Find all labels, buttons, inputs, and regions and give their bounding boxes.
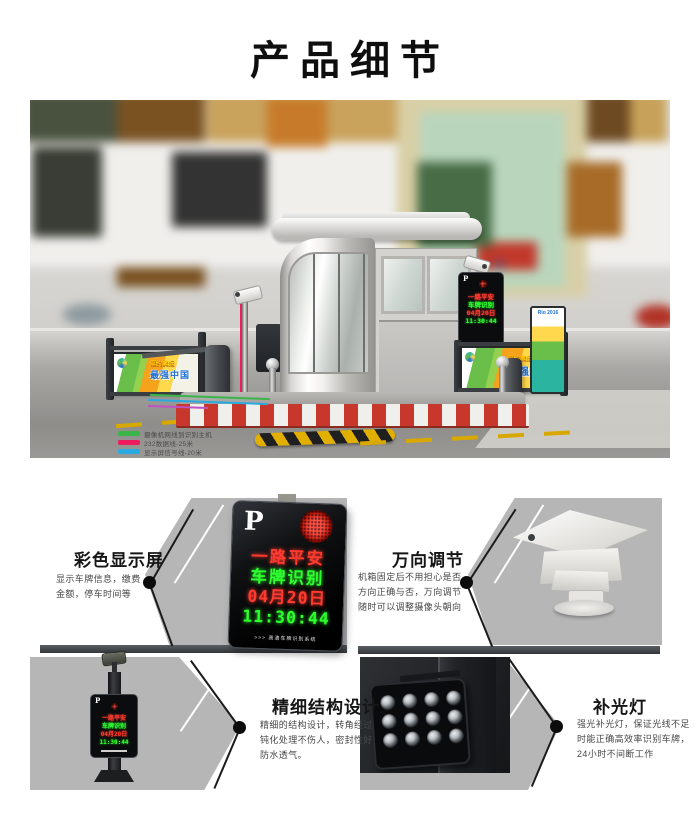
led-line: 11:30:44: [91, 739, 137, 747]
legend-item: 显示屏信号线-20米: [118, 443, 202, 451]
pole-base: [94, 770, 134, 782]
feature2-title: 万向调节: [392, 546, 464, 571]
feature4-dot: [550, 720, 563, 733]
led-p-logo: P: [95, 697, 100, 704]
feature4-desc: 强光补光灯，保证光线不足时能正确高效率识别车牌，24小时不间断工作: [577, 717, 695, 762]
legend-item: 摄像机网线到识别主机: [118, 425, 212, 433]
feature2-desc: 机箱固定后不用担心是否方向正确与否，万向调节随时可以调整摄像头朝向: [358, 570, 466, 615]
led-bulb-icon: [403, 712, 419, 728]
led-bulb-icon: [426, 730, 442, 746]
camera-base-disc: [554, 600, 614, 616]
led-bulb-icon: [447, 709, 463, 725]
feature4-title: 补光灯: [593, 693, 647, 718]
legend-label: 开关供电线-4芯线: [144, 456, 198, 458]
pole-led-display: P 一路平安 车牌识别 04月20日 11:30:44: [90, 694, 138, 758]
feature3-dot: [233, 721, 246, 734]
floodlight-body: [369, 678, 471, 770]
hero-led-display: P 一路平安 车牌识别 04月20日 11:30:44: [458, 272, 504, 348]
led-p-logo: P: [243, 508, 263, 535]
feature1-title: 彩色显示屏: [74, 546, 164, 571]
camera-lens-left: [235, 292, 240, 297]
led-bulb-icon: [405, 731, 421, 747]
led-seal-icon: [111, 703, 118, 710]
divider-bar-right: [358, 646, 660, 654]
feature1-dot: [143, 576, 156, 589]
led-bulb-icon: [402, 693, 418, 709]
camera-lens: [528, 534, 535, 541]
feature3-title: 精细结构设计: [272, 693, 380, 718]
feature1-desc: 显示车牌信息，缴费金额，停车时间等: [56, 572, 148, 602]
led-bulb-icon: [424, 692, 440, 708]
camera-pole-left: [242, 300, 248, 398]
feature1-led-display: P 一路平安 车牌识别 04月20日 11:30:44 >>> 高清车牌识别系统: [227, 500, 347, 652]
feature4-floodlight-image: [360, 657, 510, 773]
wire-red-vertical: [240, 300, 242, 396]
led-line: 一路平安: [459, 293, 503, 301]
gate-left-banner: 里约奥运 最强中国: [112, 352, 200, 394]
led-p-logo: P: [463, 275, 468, 282]
legend-item: 开关供电线-4芯线: [118, 452, 198, 458]
banner-line1: 里约奥运: [150, 359, 174, 368]
booth-roof: [272, 218, 482, 240]
led-bulb-icon: [380, 695, 396, 711]
led-bulb-icon: [381, 714, 397, 730]
floodlight-led-grid: [380, 690, 464, 749]
led-footer-text: >>> 高清车牌识别系统: [229, 633, 342, 644]
cable-legend: 摄像机网线到识别主机 232数据线-25米 显示屏信号线-20米 开关供电线-4…: [118, 425, 288, 458]
led-seal-icon: [479, 280, 487, 288]
feature3-pole-image: P 一路平安 车牌识别 04月20日 11:30:44: [80, 652, 170, 794]
feature3-desc: 精细的结构设计，转角经过钝化处理不伤人，密封性好防水透气。: [260, 718, 380, 763]
camera-lens-right: [482, 264, 487, 269]
feature2-dot: [460, 576, 473, 589]
hero-scene: 里约奥运 最强中国 P 一路平安 车牌识别 04月20日 11:30:44 里约…: [30, 100, 670, 458]
led-seal-icon: [299, 509, 333, 543]
banner-line2: 最强中国: [150, 368, 190, 381]
led-bulb-icon: [446, 690, 462, 706]
legend-item: 232数据线-25米: [118, 434, 193, 442]
led-footer-bar: [101, 750, 127, 752]
ticket-machine: Rio 2016: [530, 306, 566, 394]
led-line: 11:30:44: [229, 606, 343, 630]
led-line: 04月20日: [459, 309, 503, 317]
page-title: 产品细节: [0, 28, 700, 86]
led-line: 04月20日: [91, 731, 137, 739]
led-bulb-icon: [448, 728, 464, 744]
led-line: 车牌识别: [459, 301, 503, 309]
ticket-brand-label: Rio 2016: [532, 310, 564, 316]
led-line: 一路平安: [91, 715, 137, 723]
led-line: 11:30:44: [459, 317, 503, 325]
rio-olympics-logo-icon: [465, 352, 475, 362]
feature2-camera-image: [508, 504, 658, 626]
booth-curved-glass: [288, 252, 370, 374]
booth-window-1: [381, 256, 425, 314]
led-bulb-icon: [383, 733, 399, 749]
rio-olympics-logo-icon: [117, 358, 127, 368]
features-section: 彩色显示屏 显示车牌信息，缴费金额，停车时间等 P 一路平安 车牌识别 04月2…: [30, 490, 670, 805]
led-bulb-icon: [425, 711, 441, 727]
led-line: 车牌识别: [91, 723, 137, 731]
